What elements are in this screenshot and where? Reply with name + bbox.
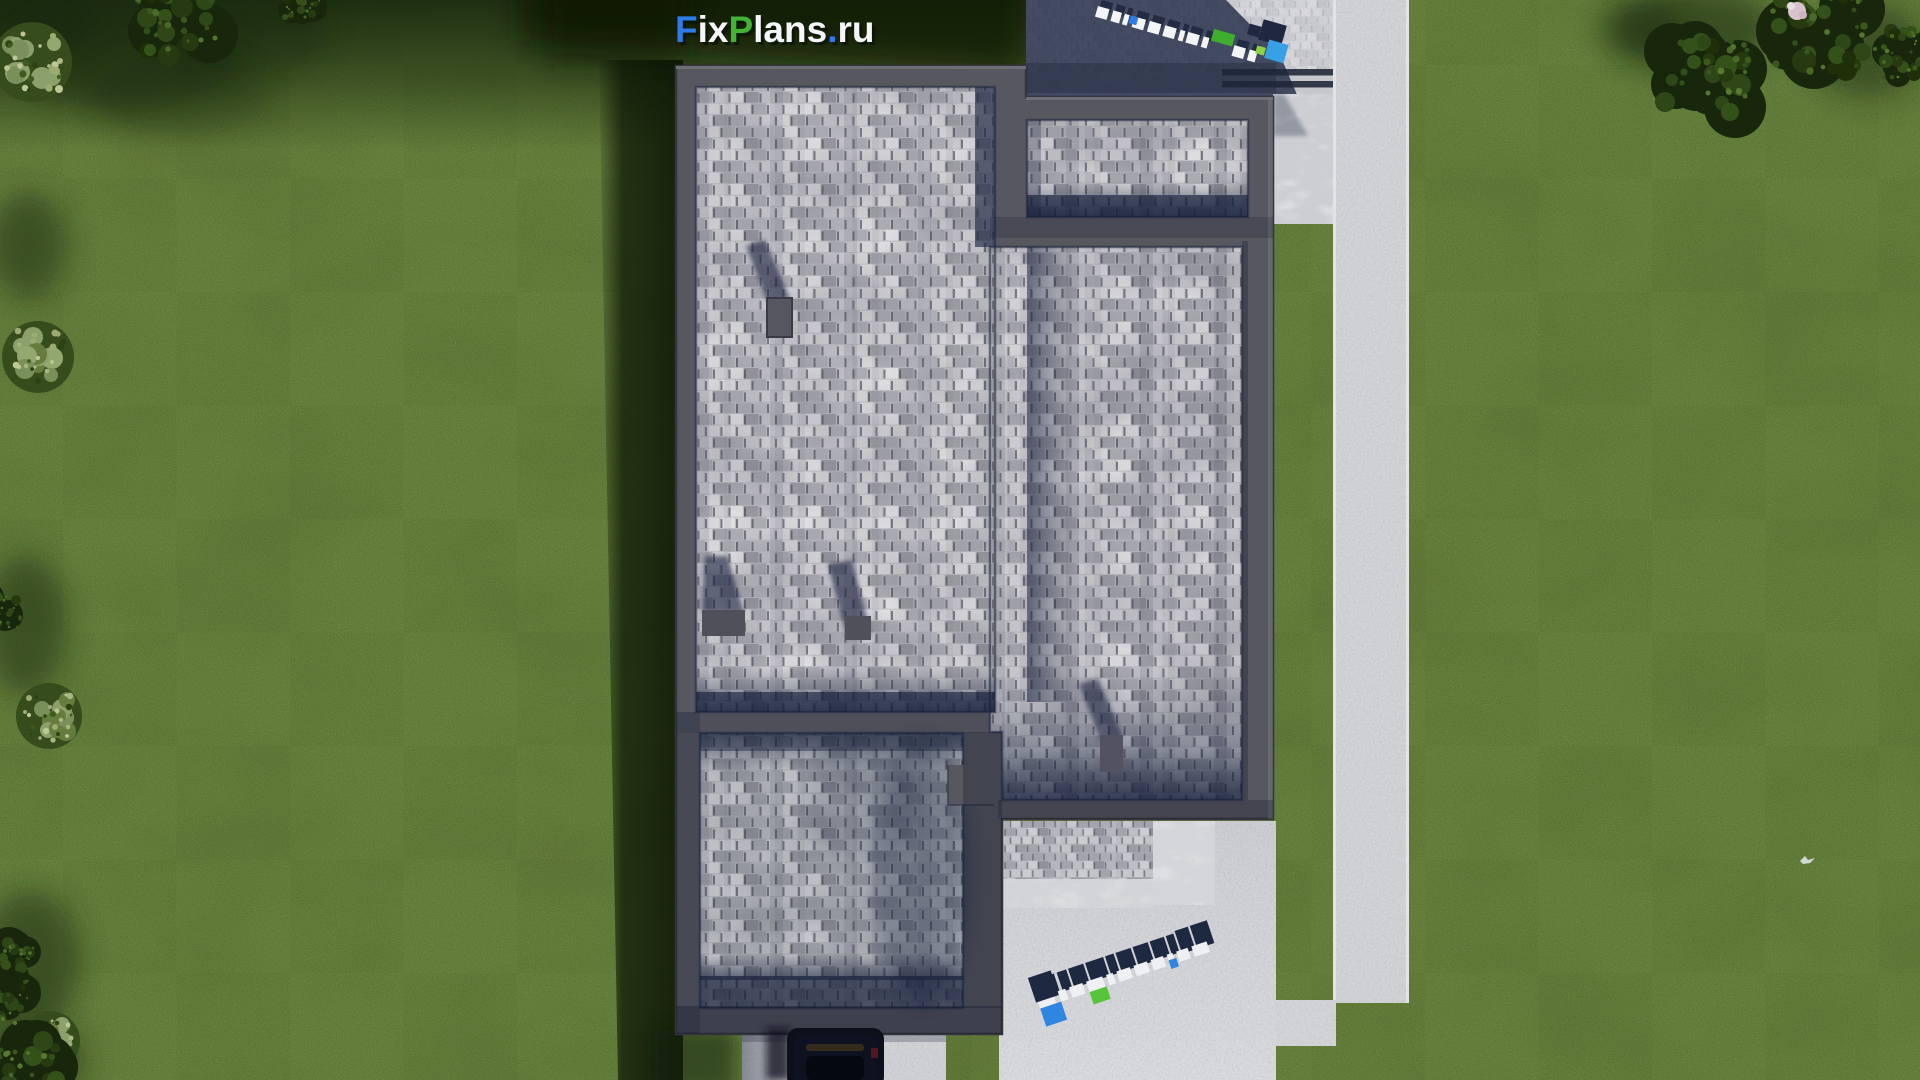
svg-text:FixPlans.ru: FixPlans.ru <box>675 9 874 50</box>
